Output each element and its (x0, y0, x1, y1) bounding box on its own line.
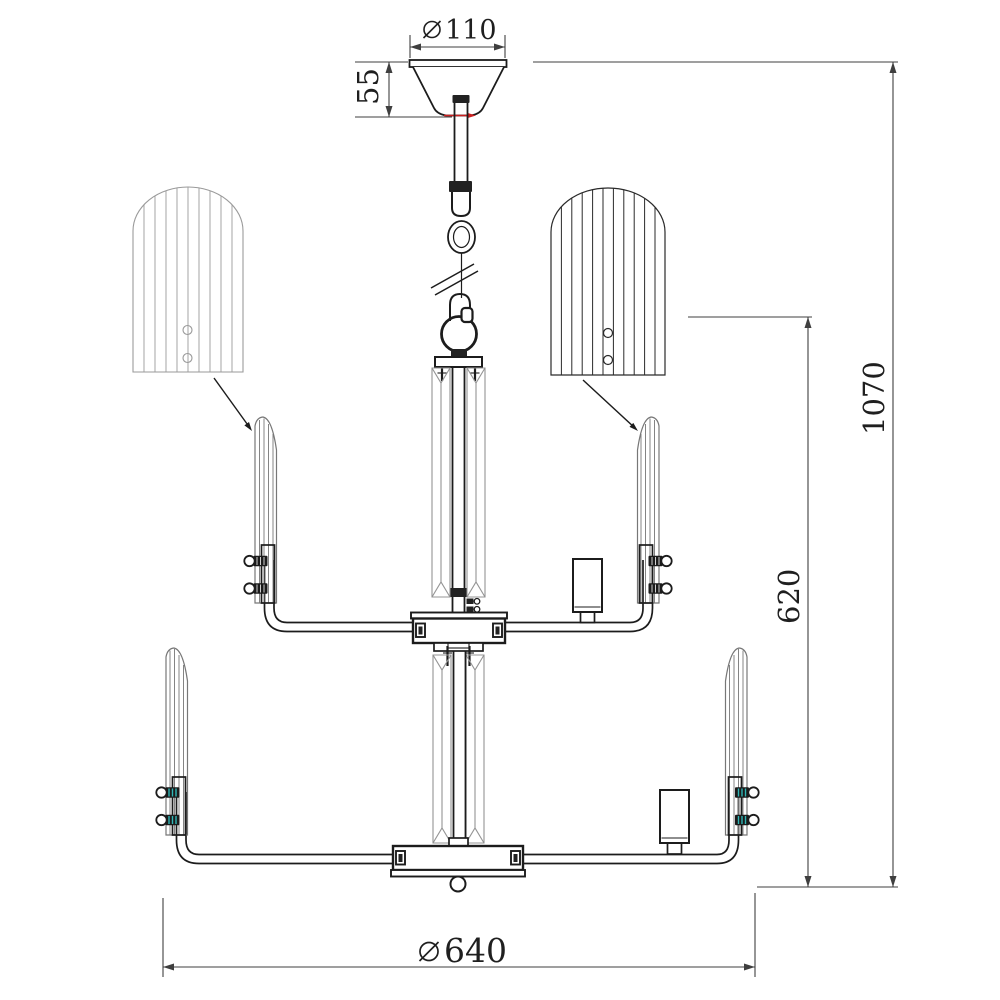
dimension-label-canopy-height: 55 (351, 68, 385, 105)
leader-arrowhead (244, 422, 252, 431)
dimension-body-height: 620 (688, 317, 812, 887)
shade-detail-right (551, 188, 665, 431)
shade-blade-upper-right (638, 417, 660, 603)
hub-body (393, 846, 523, 870)
arrowhead (386, 106, 393, 117)
hub-bottom-bracket (434, 643, 483, 651)
leader-line (214, 378, 250, 428)
leader-line (583, 380, 636, 429)
lower-tier (156, 648, 758, 892)
column-collar (451, 588, 467, 597)
hook-end-link (462, 308, 473, 322)
upper-glass-column (432, 368, 485, 597)
shade-blade-upper-left (255, 417, 277, 603)
chandelier-technical-drawing: 110 55 1070 620 640 (0, 0, 1000, 1000)
dimension-label-fixture-diameter: 640 (444, 931, 507, 970)
suspension-assembly (410, 60, 507, 321)
dimension-label-body-height: 620 (772, 569, 806, 624)
shade-outline (551, 188, 665, 375)
lamp-socket-lower (660, 790, 689, 854)
diameter-symbol (424, 21, 441, 38)
break-symbol (431, 264, 478, 295)
arrowhead (805, 876, 812, 887)
shade-detail-left (133, 187, 252, 431)
column-collar (449, 838, 468, 846)
arrowhead (890, 876, 897, 887)
shackle-loop (452, 192, 470, 216)
dimension-total-height: 1070 (533, 62, 898, 887)
dimension-fixture-diameter: 640 (163, 893, 755, 977)
arrowhead (890, 62, 897, 73)
arrowhead (805, 317, 812, 328)
mounting-hole (604, 356, 613, 365)
ring-collar (451, 349, 467, 357)
chain-link-inner (454, 227, 470, 248)
dimension-canopy-diameter: 110 (410, 15, 505, 58)
rod-connector (449, 181, 472, 192)
lamp-socket-upper (573, 559, 602, 623)
ceiling-plate (410, 60, 507, 67)
diameter-symbol (420, 942, 439, 961)
arrowhead (386, 62, 393, 73)
hub-body (413, 619, 505, 644)
canopy-cone (413, 67, 504, 116)
lower-glass-column (433, 655, 484, 843)
dimension-label-total-height: 1070 (857, 361, 891, 435)
dimension-label-canopy-diameter: 110 (445, 15, 497, 46)
arrowhead (163, 964, 174, 971)
mounting-hole (183, 326, 192, 335)
shade-flutes (144, 187, 232, 372)
mounting-hole (183, 354, 192, 363)
arrowhead (410, 44, 421, 51)
mounting-hole (604, 329, 613, 338)
shade-flutes (561, 188, 655, 375)
set-screws (467, 599, 480, 613)
rod-top-cap (453, 95, 470, 103)
chain-link (448, 221, 475, 253)
ball-finial (451, 877, 466, 892)
top-cap-plate (435, 357, 482, 367)
shade-bracket (729, 777, 742, 835)
drawing-canvas: 110 55 1070 620 640 (0, 0, 1000, 1000)
arrowhead (744, 964, 755, 971)
